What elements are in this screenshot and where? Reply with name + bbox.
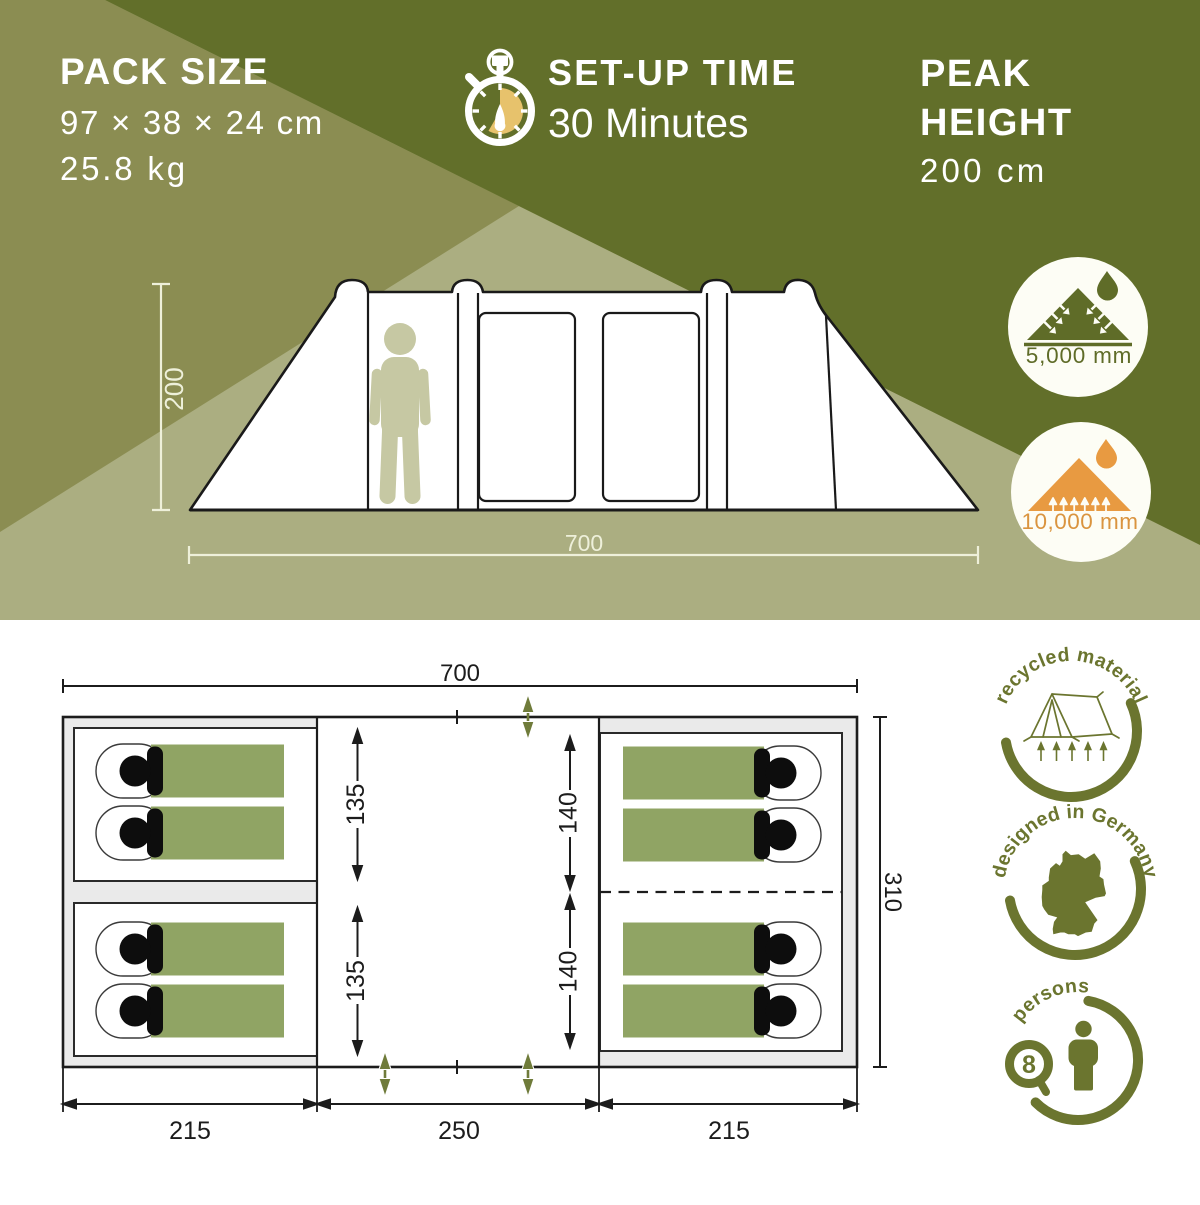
svg-text:140: 140 [555,951,583,993]
svg-text:135: 135 [342,960,370,1002]
svg-text:310: 310 [879,872,906,912]
svg-text:97 × 38 × 24 cm: 97 × 38 × 24 cm [60,104,324,141]
svg-text:200: 200 [159,367,189,410]
svg-text:25.8 kg: 25.8 kg [60,150,188,187]
svg-text:HEIGHT: HEIGHT [920,102,1073,144]
svg-text:200 cm: 200 cm [920,152,1047,189]
svg-text:30 Minutes: 30 Minutes [548,100,749,146]
svg-text:215: 215 [169,1117,211,1145]
svg-text:5,000 mm: 5,000 mm [1026,343,1132,368]
svg-text:215: 215 [708,1117,750,1145]
svg-text:250: 250 [438,1117,480,1145]
svg-text:SET-UP TIME: SET-UP TIME [548,52,798,93]
svg-text:700: 700 [565,530,603,556]
svg-text:700: 700 [440,660,480,687]
svg-text:8: 8 [1022,1051,1036,1079]
svg-text:140: 140 [555,792,583,834]
svg-text:10,000 mm: 10,000 mm [1021,509,1138,534]
svg-text:PEAK: PEAK [920,53,1032,95]
svg-text:135: 135 [342,784,370,826]
svg-text:PACK SIZE: PACK SIZE [60,51,269,92]
